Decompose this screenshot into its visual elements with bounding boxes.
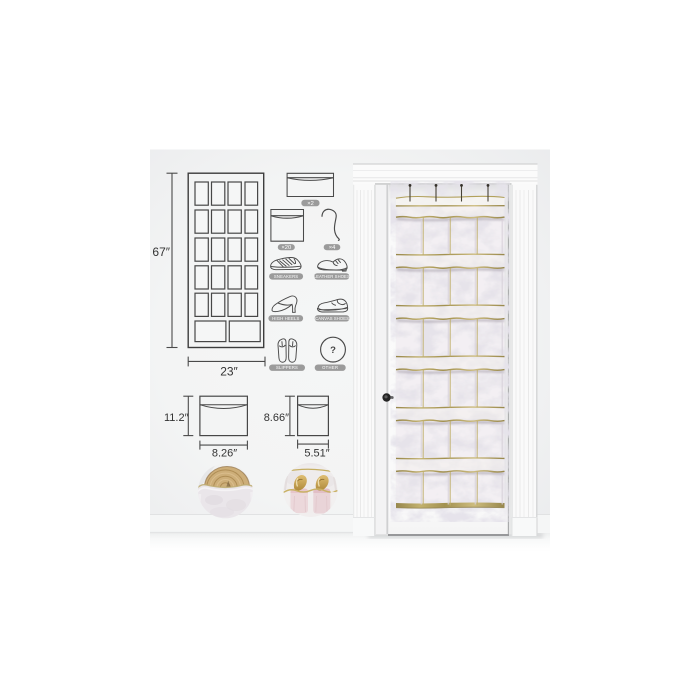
svg-text:11.2″: 11.2″ [164, 412, 189, 424]
svg-text:CANVAS SHOES: CANVAS SHOES [315, 316, 349, 321]
svg-text:SLIPPERS: SLIPPERS [276, 365, 298, 370]
svg-text:8.66″: 8.66″ [264, 412, 289, 424]
svg-text:×4: ×4 [329, 245, 336, 251]
svg-text:8.26″: 8.26″ [212, 448, 237, 460]
svg-text:LEATHER SHOES: LEATHER SHOES [314, 274, 350, 279]
svg-text:?: ? [330, 345, 336, 356]
svg-text:OTHER: OTHER [322, 365, 338, 370]
svg-text:5.51″: 5.51″ [304, 448, 329, 460]
svg-text:67″: 67″ [152, 245, 170, 259]
svg-text:23″: 23″ [220, 365, 238, 379]
svg-text:SNEAKERS: SNEAKERS [274, 274, 298, 279]
svg-text:HIGH HEELS: HIGH HEELS [272, 316, 299, 321]
svg-text:×2: ×2 [307, 201, 314, 207]
svg-text:×20: ×20 [281, 245, 291, 251]
